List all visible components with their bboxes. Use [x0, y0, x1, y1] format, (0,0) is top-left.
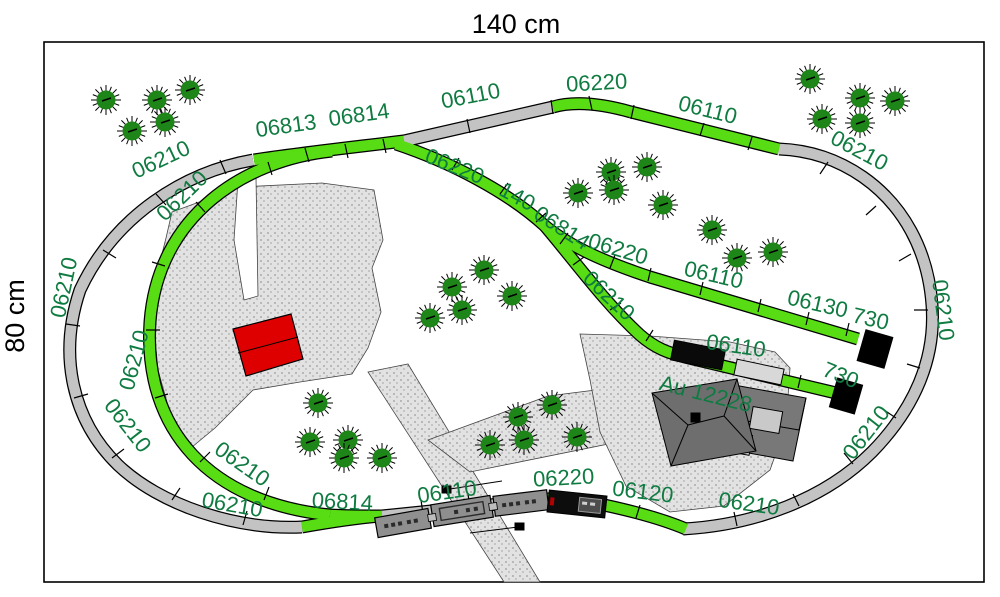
- tree[interactable]: [632, 152, 662, 182]
- signal-icon-2[interactable]: [515, 523, 524, 530]
- tree[interactable]: [447, 295, 477, 325]
- tree[interactable]: [509, 425, 539, 455]
- tree[interactable]: [150, 107, 180, 137]
- tree[interactable]: [697, 215, 727, 245]
- tree[interactable]: [415, 303, 445, 333]
- farm-chimney: [691, 413, 700, 422]
- bottom-turnout-merge-green[interactable]: [330, 515, 382, 516]
- coupler-2: [489, 502, 498, 510]
- tree[interactable]: [795, 64, 825, 94]
- tree[interactable]: [367, 443, 397, 473]
- tree[interactable]: [758, 237, 788, 267]
- tree[interactable]: [329, 443, 359, 473]
- tree[interactable]: [91, 85, 121, 115]
- track-part-label: 06220: [532, 463, 594, 491]
- tree[interactable]: [175, 75, 205, 105]
- coupler-1: [428, 513, 437, 521]
- tree[interactable]: [563, 178, 593, 208]
- tree[interactable]: [117, 116, 147, 146]
- tree[interactable]: [880, 86, 910, 116]
- tree[interactable]: [807, 104, 837, 134]
- tree[interactable]: [648, 190, 678, 220]
- track-part-label: 06814: [311, 487, 373, 515]
- dimension-width-label: 140 cm: [472, 9, 561, 39]
- farm-annex-1: [749, 407, 782, 434]
- tree[interactable]: [497, 281, 527, 311]
- track-plan-canvas: 140 cm 80 cm: [0, 0, 1000, 597]
- tree[interactable]: [469, 255, 499, 285]
- tree[interactable]: [303, 388, 333, 418]
- track-part-label: 06220: [565, 68, 627, 96]
- tree[interactable]: [503, 402, 533, 432]
- dimension-height-label: 80 cm: [0, 279, 30, 353]
- tree[interactable]: [562, 422, 592, 452]
- tree[interactable]: [475, 430, 505, 460]
- tree[interactable]: [599, 175, 629, 205]
- tree[interactable]: [142, 85, 172, 115]
- tree[interactable]: [537, 390, 567, 420]
- tree[interactable]: [295, 427, 325, 457]
